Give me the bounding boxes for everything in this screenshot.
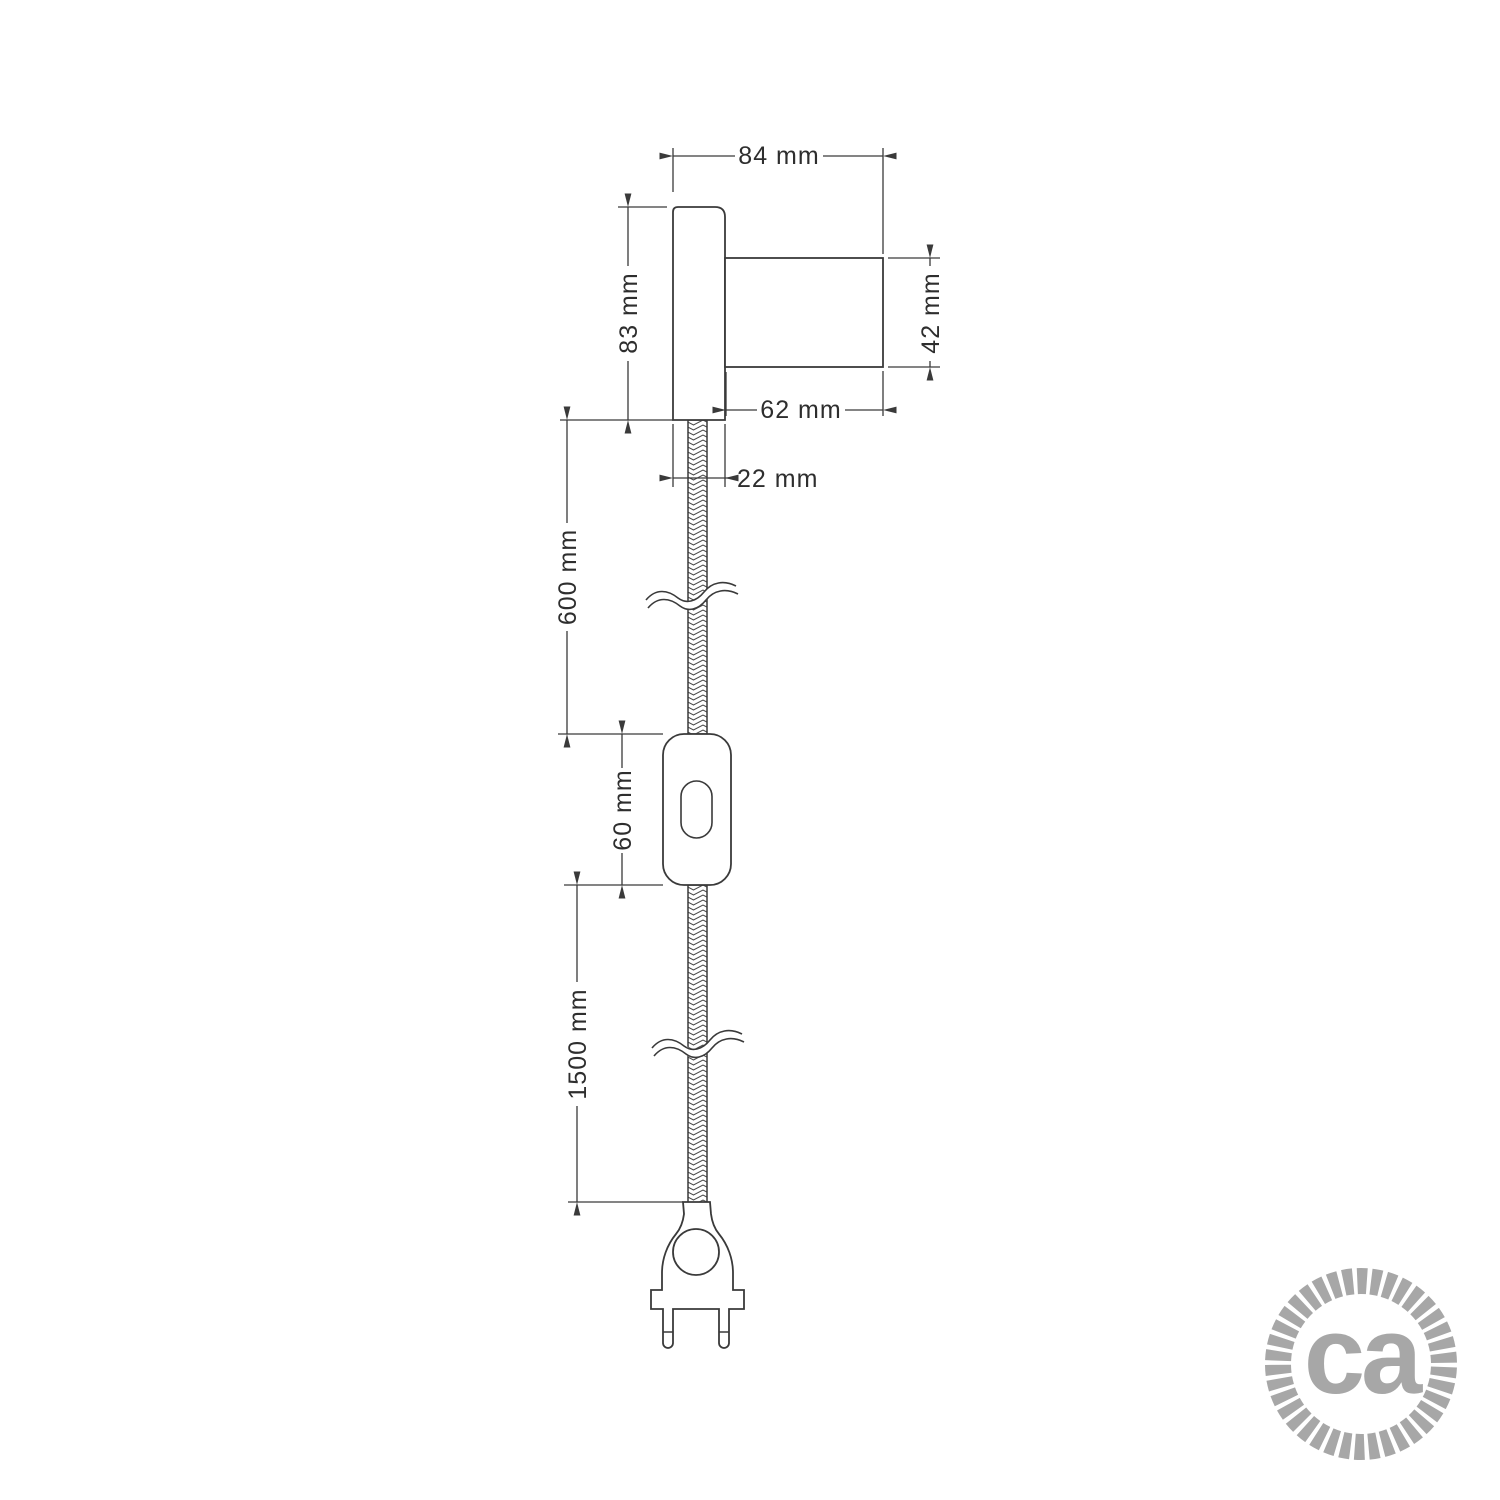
- technical-drawing-canvas: 84 mm 83 mm 42 mm 62 mm 22 mm 600 mm 60 …: [0, 0, 1500, 1500]
- plug-cable-hole: [673, 1229, 719, 1275]
- textile-cable-upper: [688, 420, 707, 734]
- dim-label-cable-upper-length: 600 mm: [554, 529, 582, 625]
- brand-logo: ca: [1263, 1266, 1460, 1463]
- switch-button: [681, 781, 712, 838]
- wall-plate: [673, 207, 725, 420]
- power-plug: [651, 1202, 744, 1348]
- lamp-socket-cylinder: [725, 258, 883, 367]
- diagram-page: 84 mm 83 mm 42 mm 62 mm 22 mm 600 mm 60 …: [0, 0, 1500, 1500]
- dim-label-base-height: 83 mm: [615, 272, 643, 353]
- dim-label-socket-length: 62 mm: [760, 396, 841, 424]
- dim-label-overall-width: 84 mm: [738, 142, 819, 170]
- dim-label-switch-length: 60 mm: [609, 769, 637, 850]
- dim-label-socket-diameter: 42 mm: [917, 272, 945, 353]
- dim-label-base-thickness: 22 mm: [737, 465, 818, 493]
- brand-logo-text: ca: [1304, 1294, 1423, 1417]
- dim-label-cable-lower-length: 1500 mm: [564, 988, 592, 1099]
- textile-cable-lower: [688, 885, 707, 1203]
- inline-switch: [663, 734, 731, 885]
